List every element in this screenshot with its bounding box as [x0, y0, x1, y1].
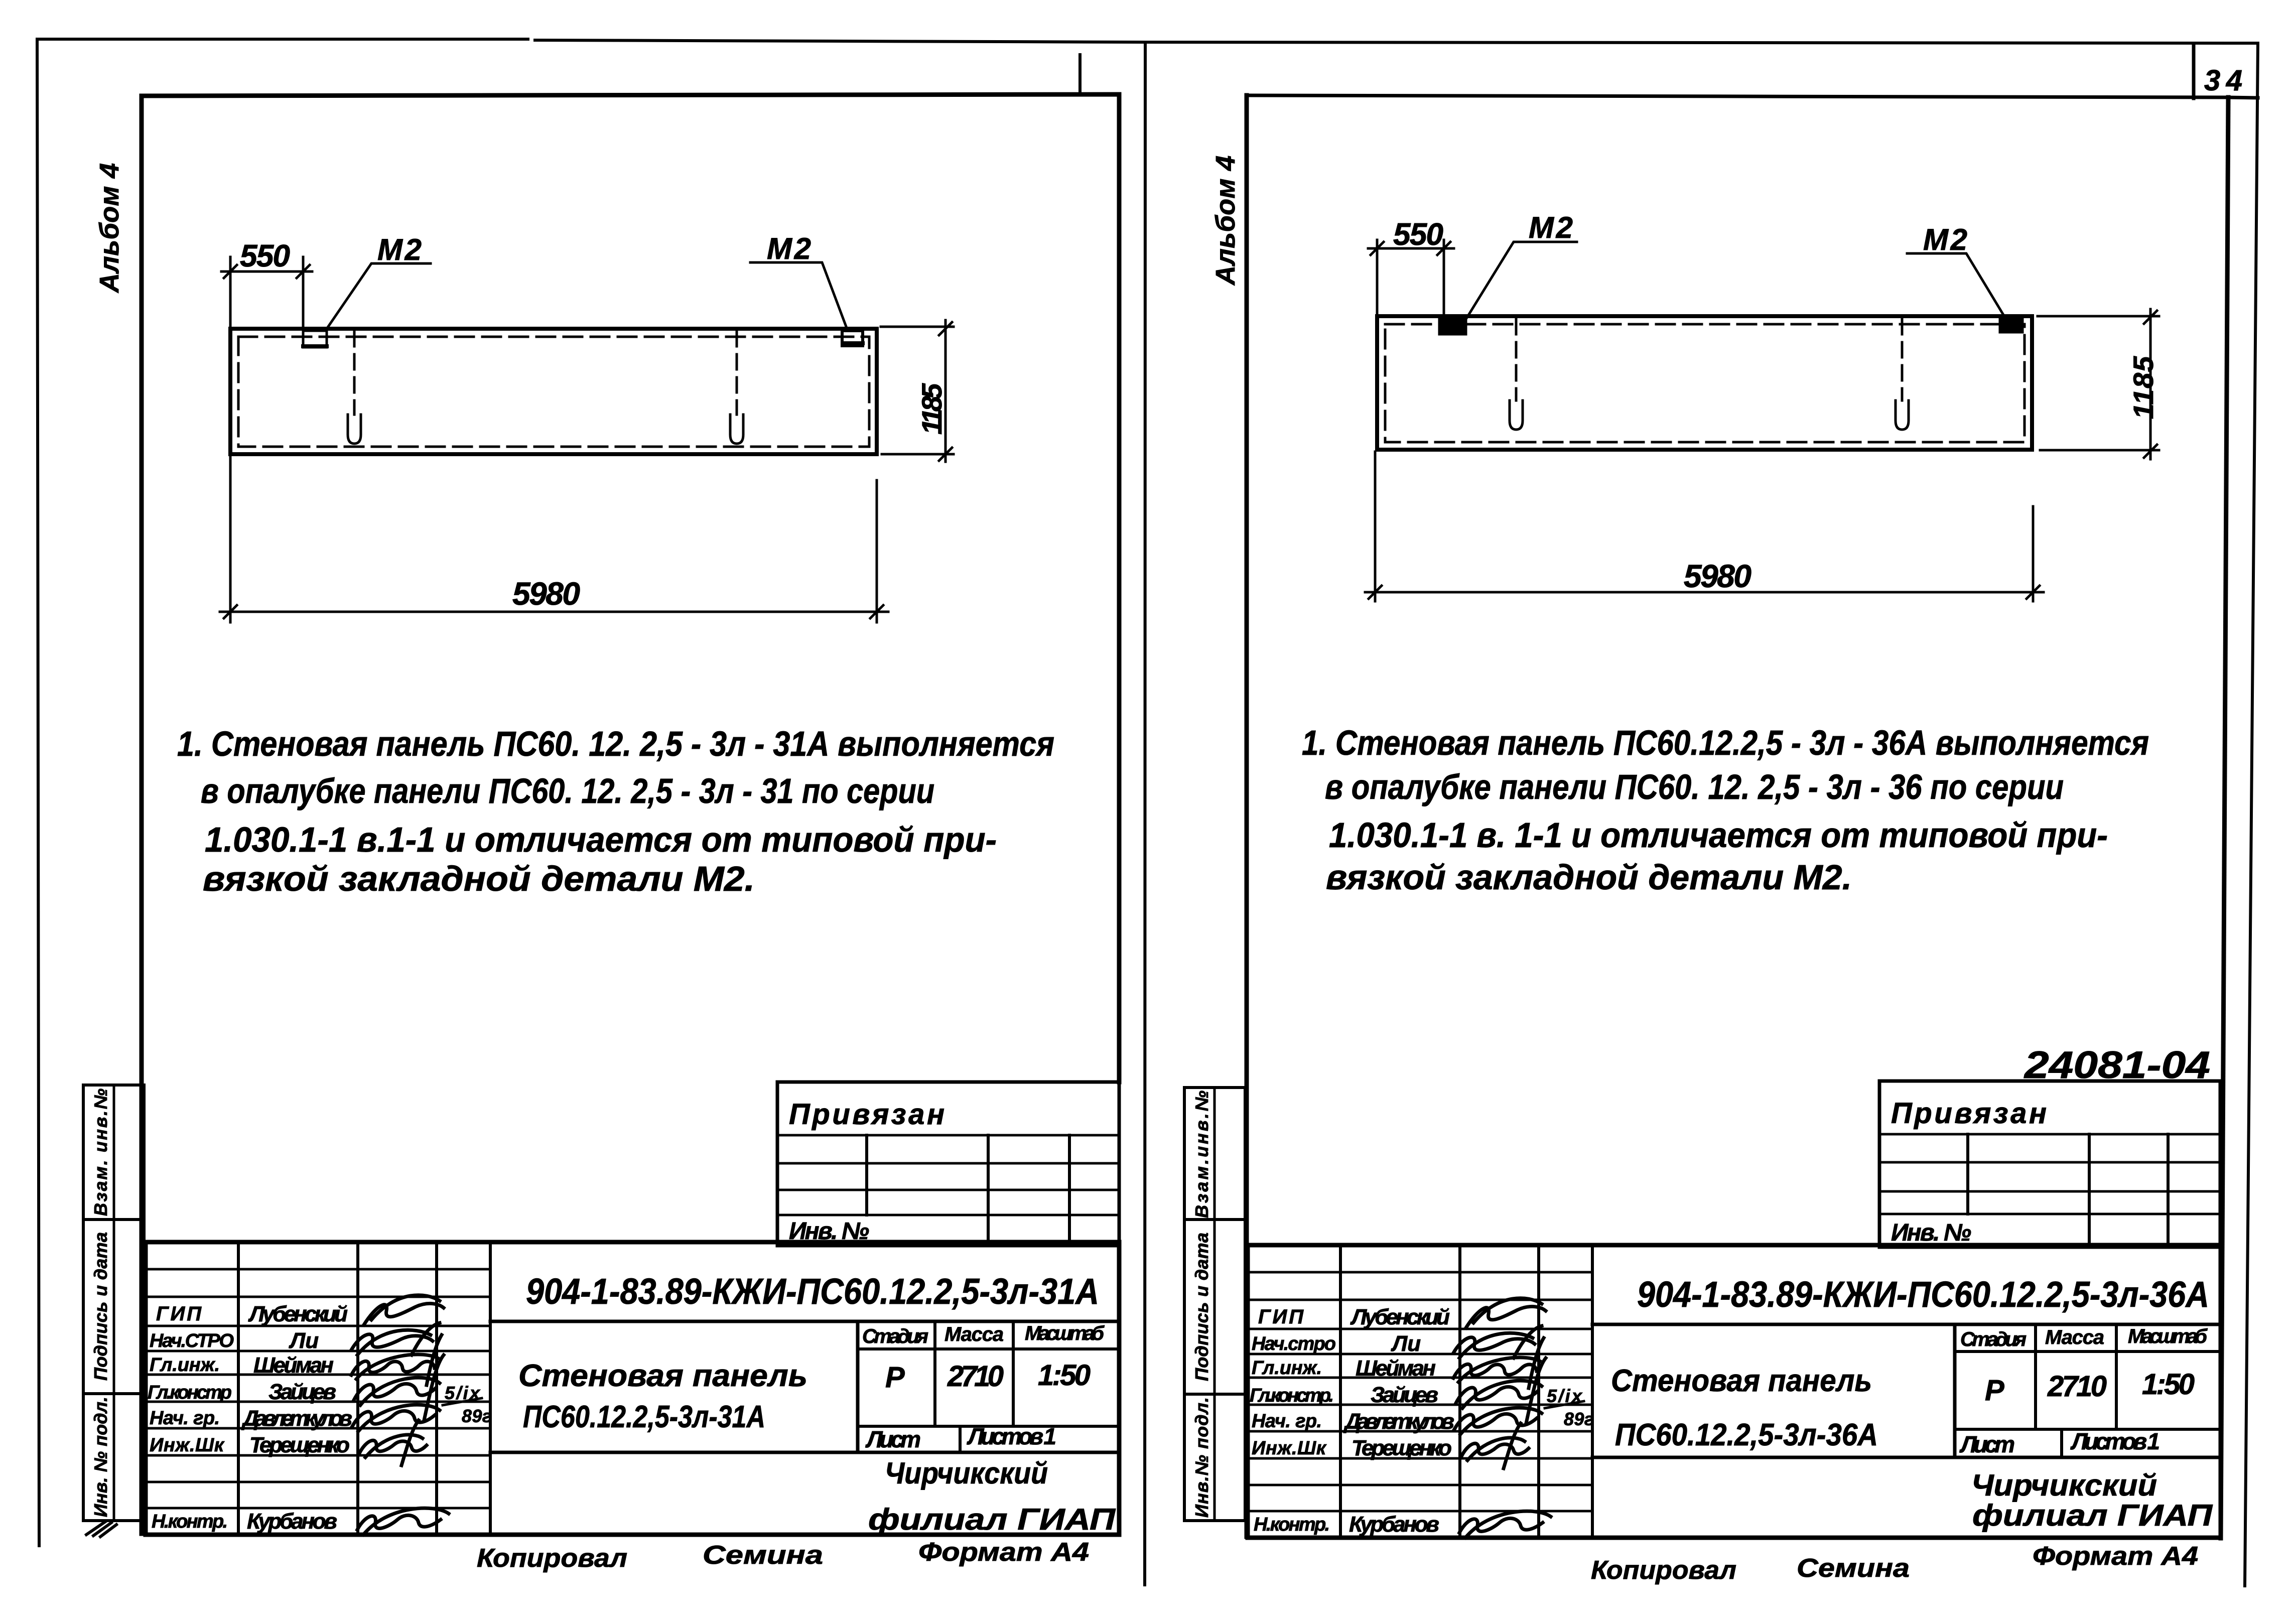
svg-text:Гл.инж.: Гл.инж. — [1252, 1358, 1322, 1379]
svg-text:Масса: Масса — [944, 1323, 1004, 1345]
svg-text:904-1-83.89-КЖИ-ПС60.12.2,5-3л: 904-1-83.89-КЖИ-ПС60.12.2,5-3л-36А — [1637, 1275, 2209, 1315]
svg-text:Курбанов: Курбанов — [247, 1509, 337, 1534]
svg-text:Формат А4: Формат А4 — [918, 1538, 1089, 1567]
svg-text:5980: 5980 — [512, 576, 580, 612]
svg-text:Шейман: Шейман — [1356, 1356, 1436, 1381]
svg-text:Нач. гр.: Нач. гр. — [1252, 1411, 1322, 1432]
svg-text:Подпись и дата: Подпись и дата — [1191, 1233, 1212, 1381]
svg-text:904-1-83.89-КЖИ-ПС60.12.2,5-3л: 904-1-83.89-КЖИ-ПС60.12.2,5-3л-31А — [526, 1272, 1099, 1312]
svg-text:89г: 89г — [1564, 1409, 1594, 1429]
svg-text:М2: М2 — [1923, 223, 1967, 256]
svg-text:Н.контр.: Н.контр. — [1254, 1514, 1330, 1535]
svg-text:550: 550 — [1393, 217, 1443, 252]
svg-text:ГИП: ГИП — [156, 1303, 202, 1325]
svg-text:Инв. №: Инв. № — [1891, 1220, 1971, 1246]
svg-text:2710: 2710 — [947, 1360, 1004, 1393]
svg-text:Терещенко: Терещенко — [249, 1433, 350, 1457]
svg-text:Стеновая панель: Стеновая панель — [1611, 1364, 1872, 1398]
svg-text:1185: 1185 — [2127, 356, 2159, 419]
svg-text:Привязан: Привязан — [789, 1098, 944, 1131]
svg-text:Р: Р — [1985, 1374, 2004, 1407]
svg-text:в опалубке панели ПС60. 12: в опалубке панели ПС60. 12. 2,5 - 3л - 3… — [1325, 767, 2064, 806]
svg-text:Альбом 4: Альбом 4 — [1210, 156, 1241, 286]
svg-text:1:50: 1:50 — [1038, 1359, 1091, 1392]
svg-text:Зайцев: Зайцев — [1371, 1383, 1438, 1407]
svg-text:1:50: 1:50 — [2142, 1368, 2195, 1401]
svg-text:Лист: Лист — [1959, 1431, 2015, 1457]
svg-text:филиал ГИАП: филиал ГИАП — [868, 1503, 1116, 1536]
svg-text:550: 550 — [240, 239, 290, 274]
svg-text:Инж.Шк: Инж.Шк — [1252, 1438, 1327, 1459]
svg-text:1185: 1185 — [916, 383, 948, 435]
svg-text:М2: М2 — [377, 233, 422, 266]
svg-text:Давлеткулов: Давлеткулов — [1343, 1409, 1454, 1434]
svg-text:Стадия: Стадия — [1960, 1328, 2027, 1350]
svg-text:Инв. № подл.: Инв. № подл. — [90, 1397, 111, 1517]
svg-text:1.030.1-1 в.1-1 и отличается: 1.030.1-1 в.1-1 и отличается от типовой … — [205, 820, 997, 859]
svg-text:Чирчикский: Чирчикский — [1971, 1468, 2157, 1502]
svg-text:Шейман: Шейман — [253, 1353, 334, 1378]
svg-text:Подпись и дата: Подпись и дата — [90, 1232, 111, 1381]
svg-text:Масштаб: Масштаб — [2128, 1325, 2208, 1347]
svg-text:М2: М2 — [767, 232, 811, 265]
svg-text:Взам.инв.№: Взам.инв.№ — [1191, 1091, 1212, 1218]
svg-text:Инж.Шк: Инж.Шк — [150, 1435, 225, 1456]
svg-text:филиал ГИАП: филиал ГИАП — [1972, 1499, 2213, 1532]
svg-text:Нач.стро: Нач.стро — [1252, 1333, 1336, 1355]
svg-text:Стадия: Стадия — [862, 1325, 928, 1347]
svg-text:1.030.1-1 в. 1-1 и отличаетс: 1.030.1-1 в. 1-1 и отличается от типовой… — [1329, 816, 2108, 855]
svg-text:Гл.инж.: Гл.инж. — [150, 1355, 220, 1376]
svg-text:Семина: Семина — [1797, 1554, 1910, 1583]
svg-text:89г: 89г — [462, 1406, 492, 1426]
svg-text:Инв.№ подл.: Инв.№ подл. — [1191, 1397, 1212, 1518]
svg-text:Альбом 4: Альбом 4 — [94, 163, 124, 294]
svg-text:Привязан: Привязан — [1891, 1097, 2047, 1130]
svg-text:Р: Р — [885, 1361, 905, 1394]
svg-text:вязкой закладной детали: вязкой закладной детали М2. — [1326, 858, 1852, 897]
svg-text:Копировал: Копировал — [1591, 1556, 1736, 1585]
svg-text:Ли: Ли — [1391, 1331, 1421, 1356]
svg-text:ПС60.12.2,5-3л-36А: ПС60.12.2,5-3л-36А — [1615, 1418, 1878, 1452]
svg-text:Зайцев: Зайцев — [268, 1380, 336, 1404]
svg-text:2710: 2710 — [2047, 1370, 2107, 1403]
svg-text:Терещенко: Терещенко — [1352, 1436, 1452, 1460]
svg-text:Нач.СТРО: Нач.СТРО — [150, 1330, 234, 1351]
svg-text:Копировал: Копировал — [477, 1544, 627, 1573]
svg-text:Семина: Семина — [703, 1541, 823, 1570]
svg-text:Н.контр.: Н.контр. — [152, 1511, 228, 1532]
svg-text:Лубенский: Лубенский — [248, 1302, 348, 1326]
svg-text:М2: М2 — [1529, 211, 1573, 244]
svg-text:Взам. инв.№: Взам. инв.№ — [90, 1089, 111, 1216]
svg-text:ГИП: ГИП — [1258, 1306, 1304, 1328]
svg-text:Стеновая панель: Стеновая панель — [518, 1359, 807, 1393]
svg-text:Чирчикский: Чирчикский — [885, 1456, 1048, 1490]
svg-text:в опалубке панели ПС60. 12.: в опалубке панели ПС60. 12. 2,5 - 3л - 3… — [201, 771, 934, 810]
svg-text:Листов 1: Листов 1 — [967, 1423, 1056, 1449]
svg-text:Ли: Ли — [289, 1328, 319, 1353]
svg-text:Лубенский: Лубенский — [1350, 1305, 1450, 1329]
svg-text:Листов 1: Листов 1 — [2070, 1428, 2160, 1454]
svg-text:Масса: Масса — [2045, 1326, 2104, 1348]
svg-text:Нач. гр.: Нач. гр. — [150, 1408, 220, 1429]
svg-text:5980: 5980 — [1684, 558, 1751, 594]
svg-text:вязкой закладной детали: вязкой закладной детали М2. — [203, 859, 755, 898]
svg-text:Формат А4: Формат А4 — [2033, 1542, 2198, 1571]
svg-text:Масштаб: Масштаб — [1025, 1322, 1105, 1344]
svg-text:Гл.констр.: Гл.констр. — [1250, 1385, 1334, 1406]
svg-text:ПС60.12.2,5-3л-31А: ПС60.12.2,5-3л-31А — [523, 1400, 765, 1434]
svg-text:Курбанов: Курбанов — [1349, 1512, 1439, 1537]
svg-text:1. Стеновая панель ПС60. 12.: 1. Стеновая панель ПС60. 12. 2,5 - 3л - … — [177, 724, 1054, 763]
svg-text:Гл.констр: Гл.констр — [148, 1382, 232, 1403]
svg-text:Лист: Лист — [865, 1426, 921, 1452]
svg-text:1. Стеновая панель ПС60.12: 1. Стеновая панель ПС60.12.2,5 - 3л - 36… — [1302, 723, 2149, 762]
svg-text:Давлеткулов: Давлеткулов — [241, 1406, 352, 1431]
